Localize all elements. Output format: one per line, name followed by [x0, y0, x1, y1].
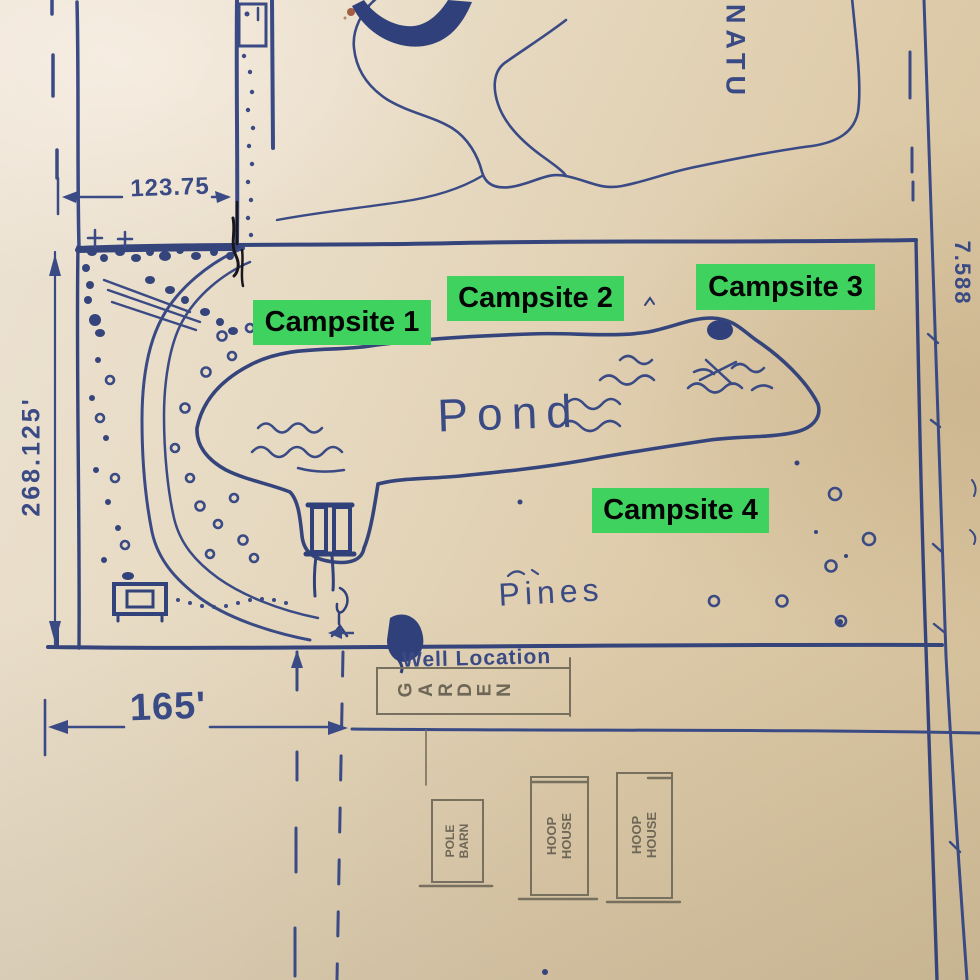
- campsite-1-label[interactable]: Campsite 1: [253, 300, 431, 345]
- campground-site-map: 123.75 268.125' 165' 7.588 NATU Pond Pin…: [0, 0, 980, 980]
- dim-top-text: 123.75: [118, 172, 223, 204]
- pond-text: Pond: [413, 383, 605, 444]
- campsite-3-label[interactable]: Campsite 3: [696, 264, 875, 310]
- nature-area-text: NATU: [720, 0, 751, 118]
- dim-left-text: 268.125': [18, 347, 47, 567]
- garden-text: GARDEN: [396, 679, 561, 701]
- campsite-2-label[interactable]: Campsite 2: [447, 276, 624, 321]
- survey-ticks: [88, 230, 132, 247]
- north-lane-lines: [52, 0, 273, 247]
- pines-text: Pines: [485, 571, 617, 615]
- gull-mark: [694, 360, 736, 384]
- bank-bush-blob: [707, 320, 733, 340]
- dimension-left: [49, 252, 61, 645]
- hoop-house-2-label: HOOP HOUSE: [628, 780, 662, 890]
- nature-area-outline: [277, 0, 859, 220]
- dim-bottom-text: 165': [125, 685, 210, 731]
- hoop-house-1-label: HOOP HOUSE: [543, 781, 577, 891]
- blueprint-drawing: [0, 0, 980, 980]
- campsite-4-label[interactable]: Campsite 4: [592, 488, 769, 533]
- shed-icon: [114, 572, 166, 621]
- swoosh-mark: [352, 0, 472, 47]
- paper-stain: [344, 8, 356, 20]
- pole-barn-label: POLE BARN: [443, 801, 473, 881]
- dotted-trail: [176, 597, 288, 609]
- dim-right-text: 7.588: [949, 218, 975, 328]
